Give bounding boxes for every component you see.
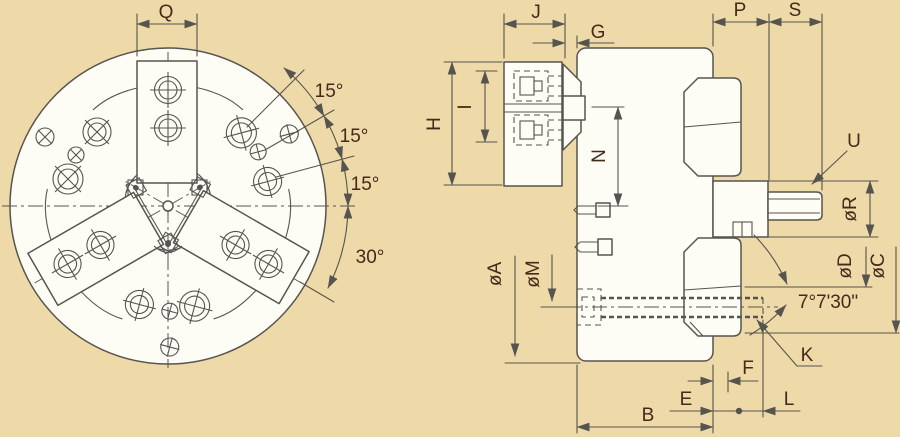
dim-label-s: S xyxy=(789,0,802,21)
dim-label-d: øD xyxy=(835,253,856,278)
dim-k: K xyxy=(757,320,822,366)
front-view: 15° 15° 15° 30° Q xyxy=(0,2,384,397)
dim-label-u: U xyxy=(847,131,861,152)
dim-label-i: I xyxy=(455,104,476,109)
dim-label-j: J xyxy=(531,2,541,23)
dim-label-q: Q xyxy=(159,2,174,23)
dim-label-r: øR xyxy=(840,196,861,221)
dim-b: B xyxy=(577,405,713,427)
rear-boss xyxy=(713,181,768,237)
master-jaw-nose xyxy=(563,96,585,120)
dim-i: I xyxy=(455,71,497,142)
dim-label-l: L xyxy=(784,389,795,410)
jaw xyxy=(137,61,197,183)
dim-g: G xyxy=(533,22,614,48)
dim-label-15-2: 15° xyxy=(340,126,369,147)
dim-label-f: F xyxy=(742,358,754,379)
jaw-block-section xyxy=(504,62,562,186)
dim-label-e: E xyxy=(680,389,693,410)
dim-c: øC xyxy=(745,247,899,333)
dim-label-h: H xyxy=(424,117,445,131)
dim-label-k: K xyxy=(801,345,814,366)
dim-d: øD xyxy=(745,247,872,287)
dim-h: H xyxy=(424,62,502,185)
dim-label-p: P xyxy=(734,0,747,21)
dim-label-g: G xyxy=(591,22,606,43)
dim-label-30: 30° xyxy=(356,247,385,268)
dim-taper-angle: 7°7'30" xyxy=(750,235,858,335)
dim-label-m: øM xyxy=(523,260,544,287)
dim-m: øM xyxy=(523,255,566,307)
chuck-engineering-drawing: 15° 15° 15° 30° Q xyxy=(0,0,900,437)
dim-label-15-3: 15° xyxy=(351,174,380,195)
dim-label-15-1: 15° xyxy=(315,81,344,102)
dim-label-a: øA xyxy=(485,262,506,287)
dim-j: J xyxy=(504,2,565,58)
dim-label-n: N xyxy=(589,149,610,163)
dim-e-l: E L xyxy=(670,389,800,414)
threaded-shaft xyxy=(768,192,822,220)
dim-label-b: B xyxy=(642,405,655,426)
dim-label-taper: 7°7'30" xyxy=(798,292,858,313)
dim-label-c: øC xyxy=(868,253,889,278)
drawing-stage: 15° 15° 15° 30° Q xyxy=(0,0,900,437)
dim-u: U xyxy=(812,131,861,184)
side-view: J G P S H I xyxy=(424,0,899,433)
wedge-plunger-upper xyxy=(684,78,741,176)
